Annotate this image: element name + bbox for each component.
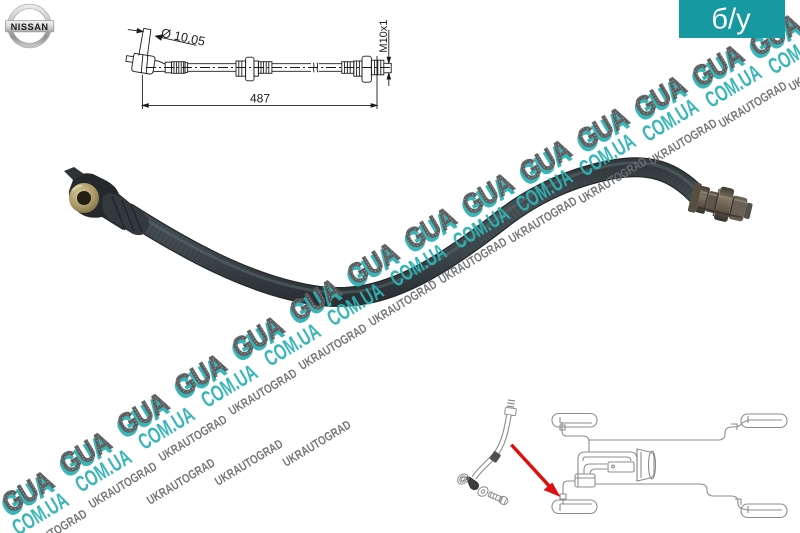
svg-text:UKRAUTOGRAD: UKRAUTOGRAD: [144, 456, 217, 508]
svg-text:NISSAN: NISSAN: [11, 22, 49, 32]
svg-text:UKRAUTOGRAD: UKRAUTOGRAD: [280, 418, 353, 470]
svg-text:Ø 10,05: Ø 10,05: [160, 26, 206, 49]
svg-text:б/у: б/у: [711, 4, 751, 36]
svg-text:M10x1: M10x1: [378, 20, 390, 53]
svg-text:UKRAUTOGRAD: UKRAUTOGRAD: [212, 437, 285, 489]
svg-text:487: 487: [250, 91, 270, 105]
